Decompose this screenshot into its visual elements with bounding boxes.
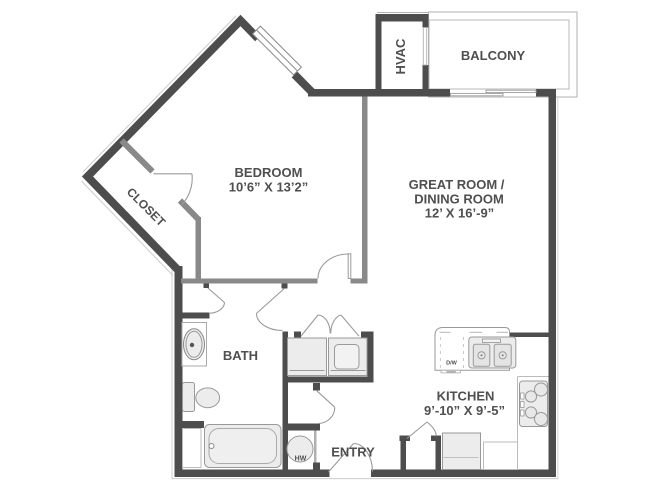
- svg-text:BEDROOM: BEDROOM: [235, 165, 303, 180]
- svg-text:DINING ROOM: DINING ROOM: [414, 192, 504, 207]
- svg-text:BALCONY: BALCONY: [461, 48, 526, 63]
- svg-text:ENTRY: ENTRY: [331, 445, 375, 460]
- svg-text:10’6” X 13’2”: 10’6” X 13’2”: [229, 180, 309, 195]
- svg-text:HVAC: HVAC: [393, 38, 408, 74]
- svg-text:HW: HW: [295, 456, 307, 463]
- svg-text:GREAT ROOM /: GREAT ROOM /: [409, 177, 505, 192]
- svg-text:9’-10” X 9’-5”: 9’-10” X 9’-5”: [424, 403, 505, 418]
- svg-text:BATH: BATH: [223, 348, 258, 363]
- svg-text:D/W: D/W: [446, 361, 458, 367]
- svg-text:KITCHEN: KITCHEN: [437, 389, 495, 404]
- svg-text:12’ X 16’-9”: 12’ X 16’-9”: [425, 206, 494, 221]
